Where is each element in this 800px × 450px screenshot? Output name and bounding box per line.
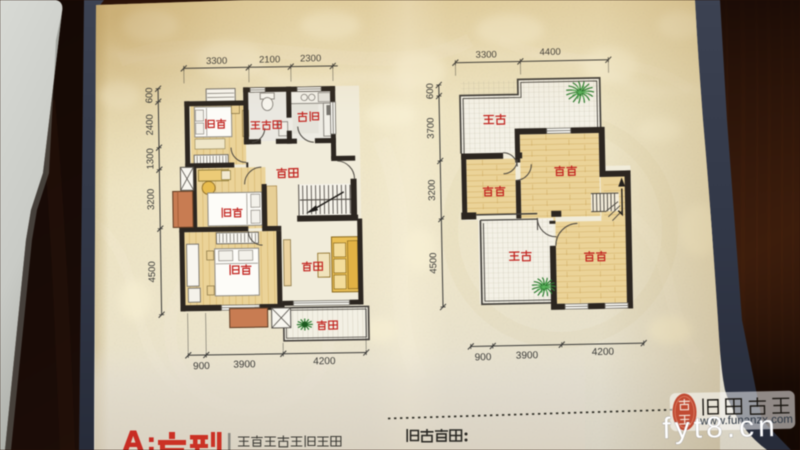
svg-text:fyt8.cn: fyt8.cn [662, 410, 779, 445]
